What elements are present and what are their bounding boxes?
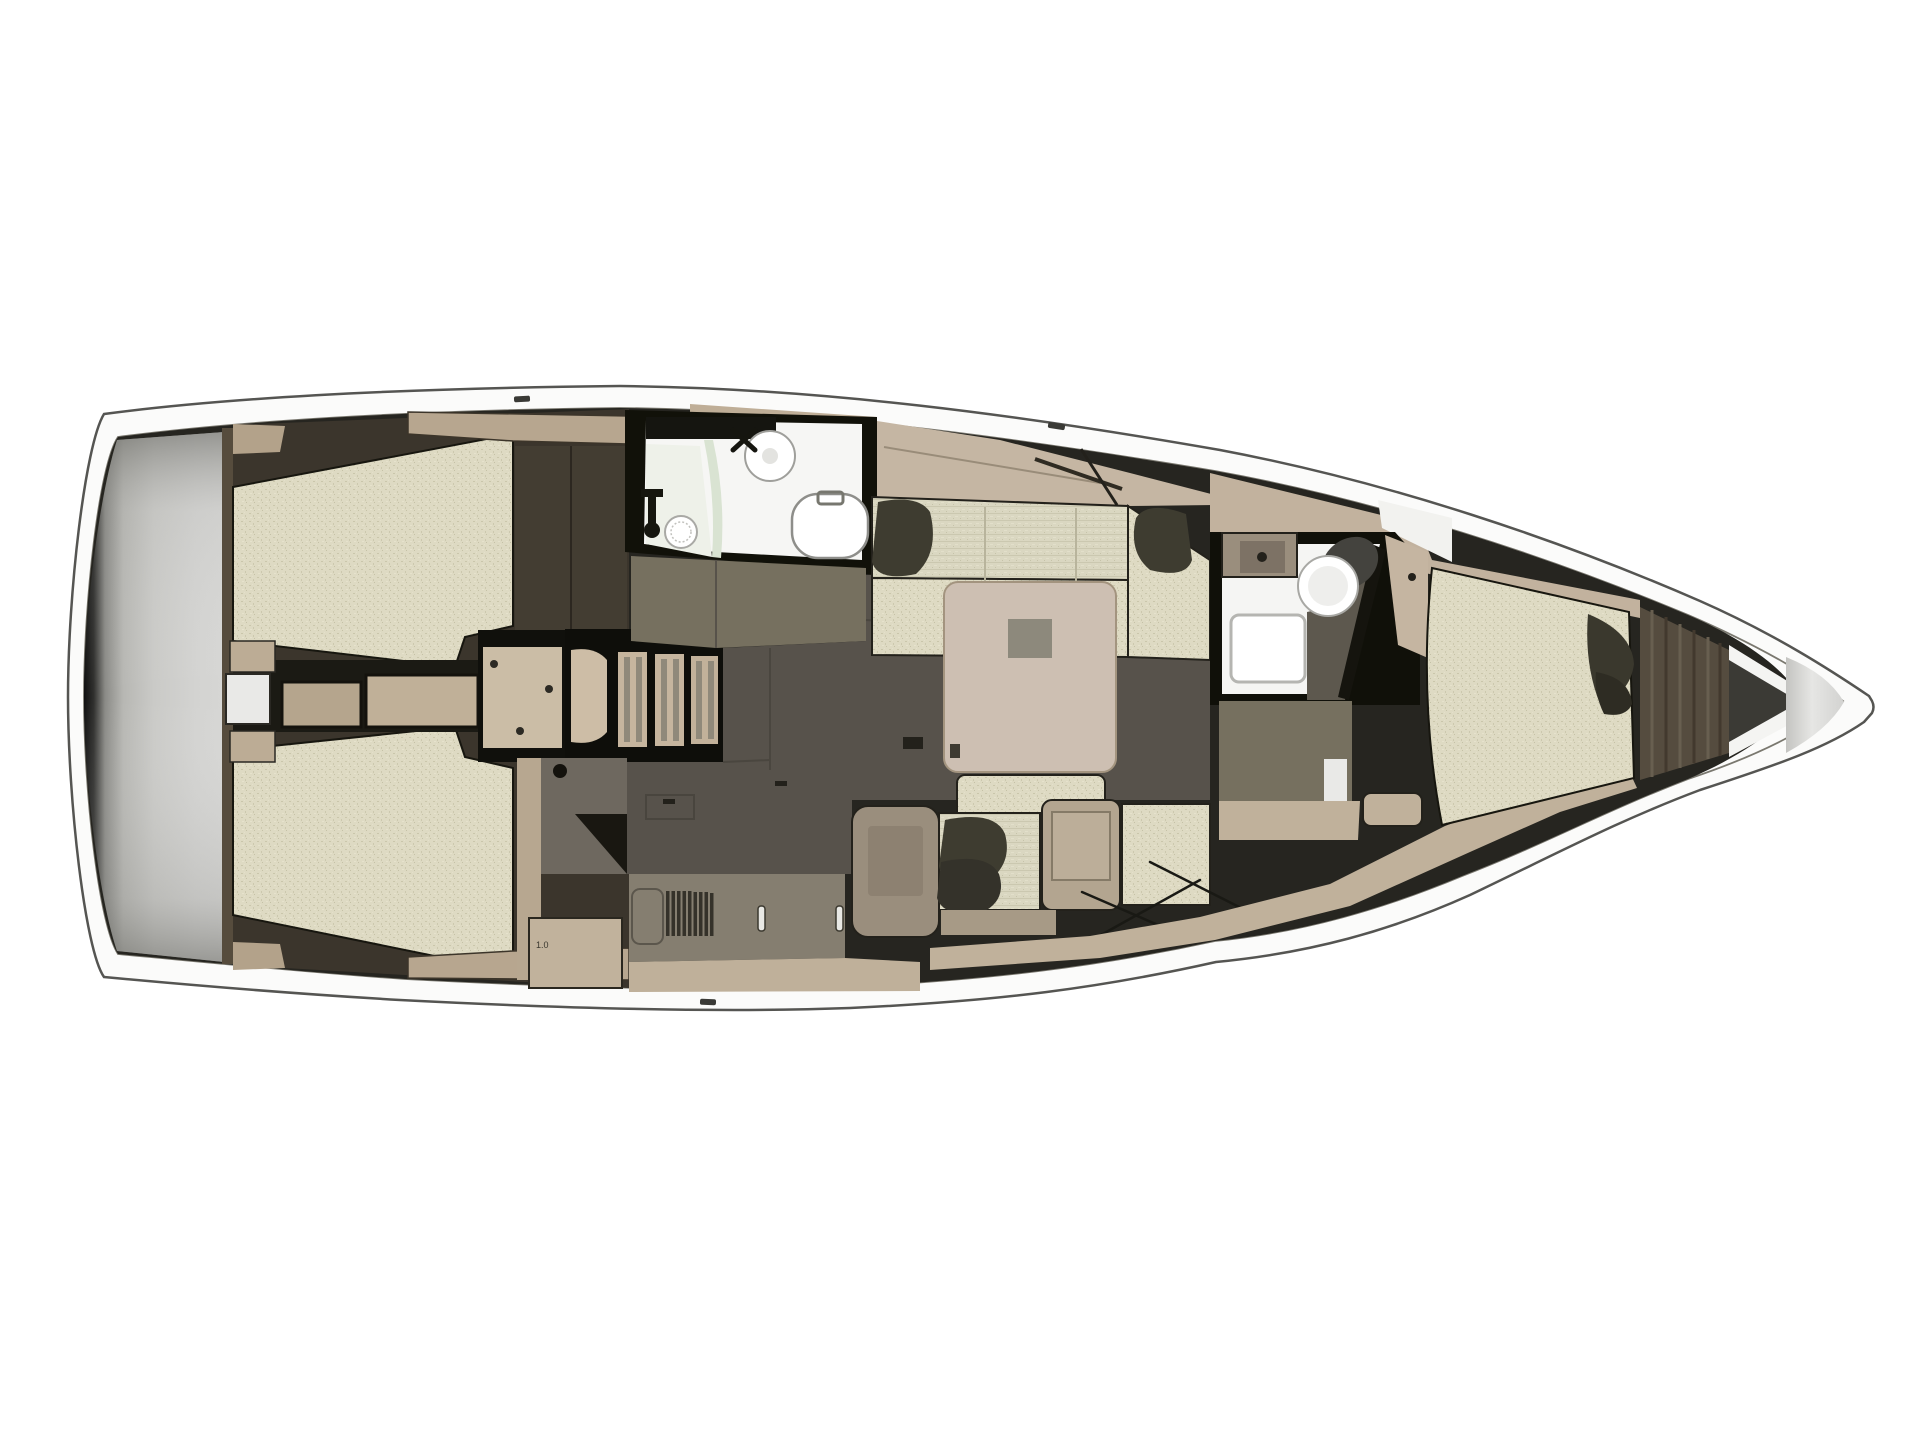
svg-text:1.0: 1.0 [536,940,549,950]
